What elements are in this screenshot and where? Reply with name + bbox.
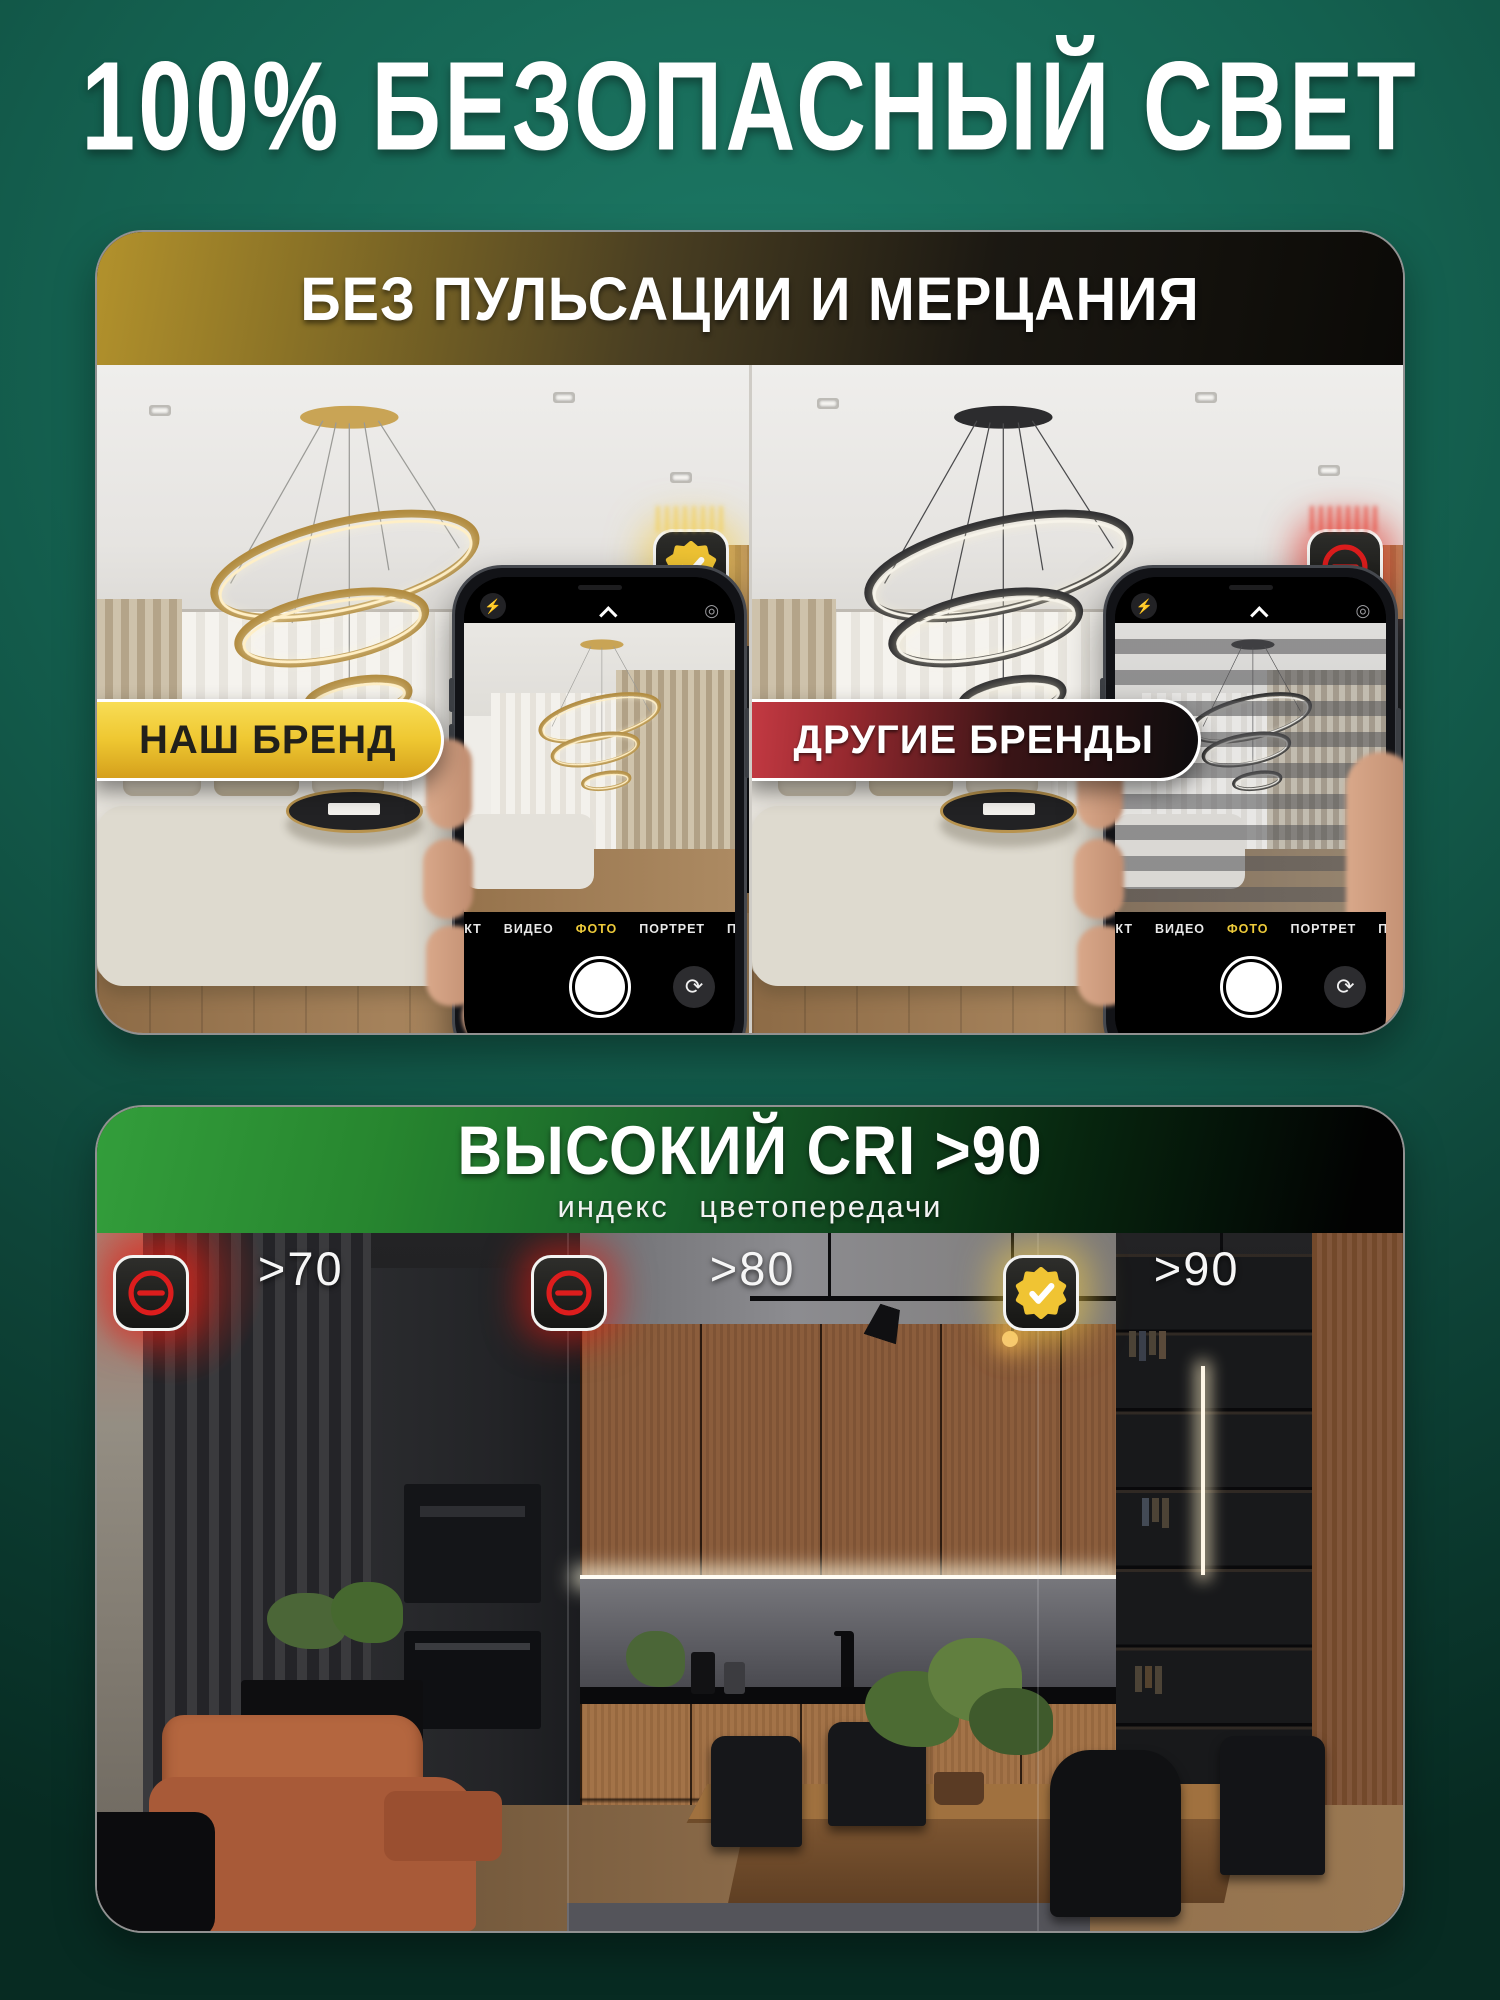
zone-divider	[1037, 1233, 1039, 1931]
camera-mode-active: ФОТО	[576, 922, 617, 936]
phone-mockup: ⚡ ◎	[452, 565, 747, 1033]
built-in-oven	[404, 1631, 541, 1729]
camera-mode: ПАНОР	[1378, 922, 1386, 936]
ceiling-spotlight	[670, 472, 692, 483]
camera-mode-active: ФОТО	[1227, 922, 1268, 936]
camera-flip-icon: ⟳	[1324, 966, 1366, 1008]
books	[1142, 1498, 1169, 1528]
upper-cabinets	[580, 1324, 1115, 1575]
cri-card-subtitle: индекс цветопередачи	[558, 1189, 943, 1225]
camera-flip-icon: ⟳	[673, 966, 715, 1008]
other-brands-photo: ⚡ ◎	[752, 365, 1404, 1033]
other-brands-badge-label: ДРУГИЕ БРЕНДЫ	[794, 718, 1154, 763]
power-button	[745, 708, 748, 778]
phone-notch	[535, 577, 665, 599]
zone-divider	[567, 1233, 569, 1931]
books	[1129, 1331, 1166, 1361]
counter-plant	[626, 1631, 685, 1687]
dining-chair	[711, 1736, 802, 1848]
camera-mode: ЭФФЕКТ	[1115, 922, 1133, 936]
phone-screen: ⚡ ◎	[464, 577, 735, 1033]
dining-chair	[1220, 1736, 1324, 1876]
flicker-card: БЕЗ ПУЛЬСАЦИИ И МЕРЦАНИЯ	[95, 230, 1405, 1035]
ceiling-spotlight	[1195, 392, 1217, 403]
books	[1135, 1666, 1162, 1694]
glow-rays	[1310, 506, 1380, 532]
glow-rays	[656, 506, 726, 532]
prohibition-minus-icon	[531, 1255, 607, 1331]
cri-card: ВЫСОКИЙ CRI >90 индекс цветопередачи	[95, 1105, 1405, 1933]
phone-notch	[1186, 577, 1316, 599]
flash-icon: ⚡	[1131, 593, 1157, 619]
camera-mode: ВИДЕО	[1155, 922, 1205, 936]
finger	[1074, 839, 1124, 919]
camera-mode: ПАНОР	[727, 922, 735, 936]
camera-mode: ПОРТРЕТ	[1290, 922, 1356, 936]
faucet	[841, 1631, 854, 1687]
jar	[724, 1662, 745, 1693]
coffee-machine	[404, 1484, 541, 1603]
sofa-chaise	[97, 806, 468, 986]
armchair-arm	[384, 1791, 502, 1861]
our-brand-badge: НАШ БРЕНД	[97, 699, 444, 781]
jar	[691, 1652, 715, 1694]
cri-card-header: ВЫСОКИЙ CRI >90 индекс цветопередачи	[97, 1107, 1403, 1233]
comparison-photos: ⚡ ◎	[97, 365, 1403, 1033]
flicker-card-title: БЕЗ ПУЛЬСАЦИИ И МЕРЦАНИЯ	[300, 263, 1199, 335]
our-brand-badge-label: НАШ БРЕНД	[139, 718, 397, 763]
our-brand-photo: ⚡ ◎	[97, 365, 749, 1033]
flash-icon: ⚡	[480, 593, 506, 619]
ceiling-spotlight	[1318, 465, 1340, 476]
camera-viewfinder	[464, 623, 735, 912]
camera-mode: ПОРТРЕТ	[639, 922, 705, 936]
camera-bottom-bar: ЭФФЕКТ ВИДЕО ФОТО ПОРТРЕТ ПАНОР ⟳	[464, 912, 735, 1033]
prohibition-minus-icon	[113, 1255, 189, 1331]
kitchen-photo: >70 >80 >90	[97, 1233, 1403, 1931]
camera-mode: ЭФФЕКТ	[464, 922, 482, 936]
shutter-button	[569, 956, 631, 1018]
chevron-up-icon	[1250, 607, 1268, 625]
finger	[423, 839, 473, 919]
other-brands-badge: ДРУГИЕ БРЕНДЫ	[752, 699, 1201, 781]
flicker-card-header: БЕЗ ПУЛЬСАЦИИ И МЕРЦАНИЯ	[97, 232, 1403, 365]
live-photo-icon: ◎	[704, 602, 719, 619]
cri-card-title: ВЫСОКИЙ CRI >90	[457, 1112, 1042, 1190]
camera-bottom-bar: ЭФФЕКТ ВИДЕО ФОТО ПОРТРЕТ ПАНОР ⟳	[1115, 912, 1386, 1033]
ceiling-spotlight	[553, 392, 575, 403]
camera-modes: ЭФФЕКТ ВИДЕО ФОТО ПОРТРЕТ ПАНОР	[464, 922, 735, 936]
pendant-bulb	[1002, 1331, 1018, 1347]
lamp-rod	[828, 1233, 831, 1296]
black-sofa	[97, 1812, 215, 1931]
volume-button	[449, 678, 454, 712]
gray-rug	[567, 1903, 1089, 1931]
dining-chair	[1050, 1750, 1181, 1918]
shutter-button	[1220, 956, 1282, 1018]
coffee-table	[940, 789, 1077, 832]
cri-zone-label: >90	[1154, 1241, 1240, 1296]
camera-mode: ВИДЕО	[504, 922, 554, 936]
coffee-table	[286, 789, 423, 832]
table-plant	[854, 1638, 1063, 1806]
page-title: 100% БЕЗОПАСНЫЙ СВЕТ	[0, 34, 1500, 180]
plant	[267, 1582, 411, 1694]
cri-zone-label: >80	[710, 1241, 796, 1296]
cri-zone-label: >70	[258, 1241, 344, 1296]
vertical-tube-lamp	[1201, 1366, 1205, 1575]
check-seal-icon	[1003, 1255, 1079, 1331]
promo-page: 100% БЕЗОПАСНЫЙ СВЕТ БЕЗ ПУЛЬСАЦИИ И МЕР…	[0, 0, 1500, 2000]
chevron-up-icon	[599, 607, 617, 625]
camera-modes: ЭФФЕКТ ВИДЕО ФОТО ПОРТРЕТ ПАНОР	[1115, 922, 1386, 936]
sofa-chaise	[752, 806, 1123, 986]
live-photo-icon: ◎	[1355, 602, 1370, 619]
